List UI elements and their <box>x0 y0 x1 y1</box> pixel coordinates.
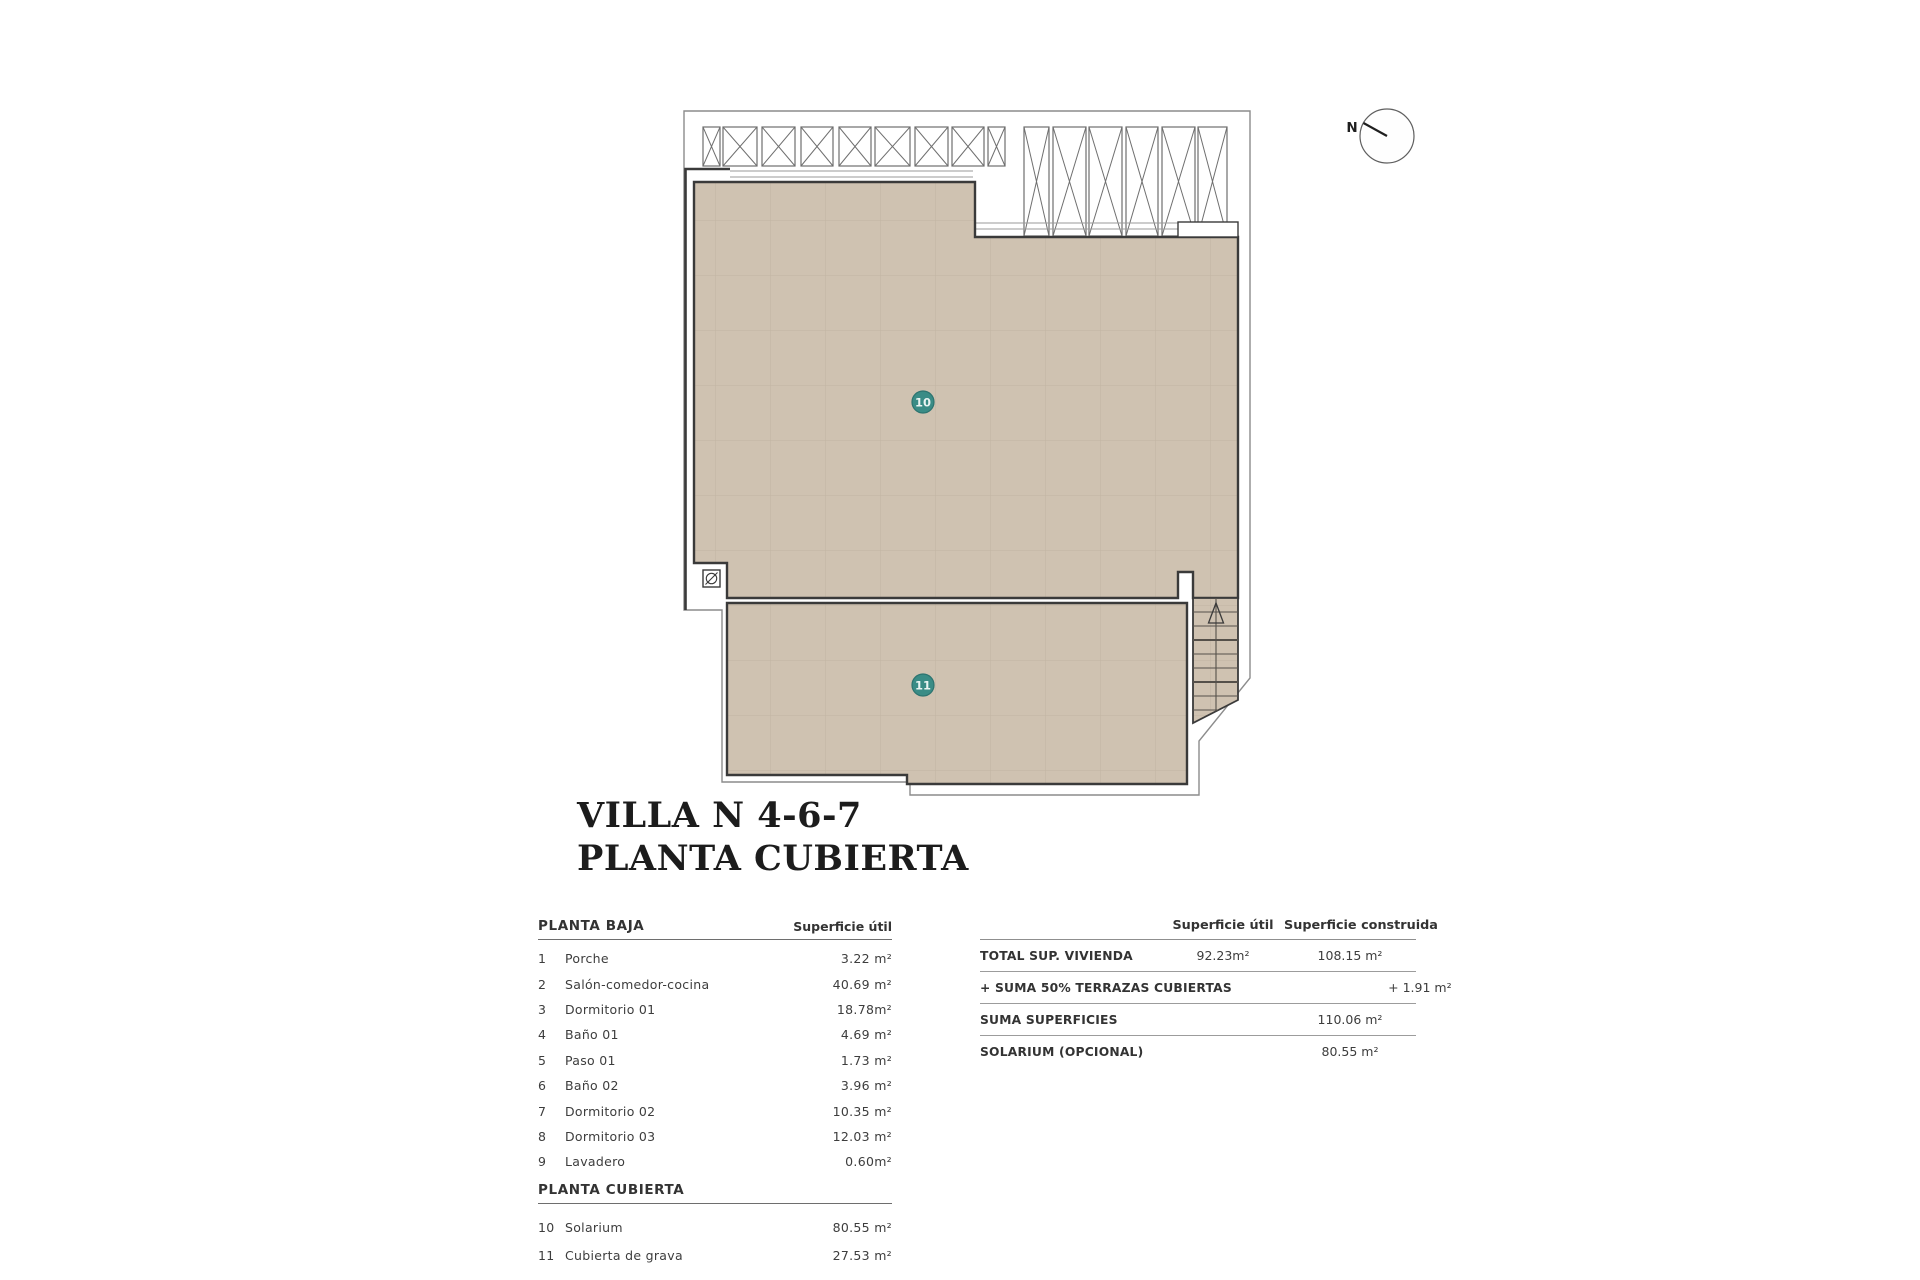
summary-construida: 110.06 m² <box>1284 1012 1416 1027</box>
column-header-superficie-util: Superficie útil <box>793 919 892 934</box>
table-row: 9 Lavadero 0.60m² <box>538 1149 892 1174</box>
planta-baja-rows: 1 Porche 3.22 m² 2 Salón-comedor-cocina … <box>538 940 892 1175</box>
room-area: 3.96 m² <box>841 1078 892 1093</box>
floor-plan-page: 10 11 N VILLA N 4-6-7 PLANTA CUBIERTA PL… <box>0 0 1920 1280</box>
table-row: SOLARIUM (OPCIONAL) 80.55 m² <box>980 1036 1416 1067</box>
table-row: 7 Dormitorio 02 10.35 m² <box>538 1098 892 1123</box>
room-area: 4.69 m² <box>841 1027 892 1042</box>
summary-construida: + 1.91 m² <box>1354 980 1486 995</box>
room-name: Baño 01 <box>565 1027 841 1042</box>
room-name: Paso 01 <box>565 1053 841 1068</box>
table-row: 5 Paso 01 1.73 m² <box>538 1048 892 1073</box>
room-number: 2 <box>538 977 565 992</box>
room-name: Porche <box>565 951 841 966</box>
room-area: 40.69 m² <box>833 977 892 992</box>
solarium-roof <box>694 182 1238 598</box>
room-area: 80.55 m² <box>833 1220 892 1235</box>
rooms-table-header-2: PLANTA CUBIERTA <box>538 1182 892 1204</box>
room-name: Dormitorio 01 <box>565 1002 837 1017</box>
table-row: 3 Dormitorio 01 18.78m² <box>538 997 892 1022</box>
room-name: Lavadero <box>565 1154 845 1169</box>
table-row: 1 Porche 3.22 m² <box>538 946 892 971</box>
table-row: 8 Dormitorio 03 12.03 m² <box>538 1124 892 1149</box>
table-row: 11 Cubierta de grava 27.53 m² <box>538 1242 892 1270</box>
room-area: 3.22 m² <box>841 951 892 966</box>
room-area: 0.60m² <box>845 1154 892 1169</box>
table-row: SUMA SUPERFICIES 110.06 m² <box>980 1004 1416 1036</box>
rooms-table: PLANTA BAJA Superficie útil 1 Porche 3.2… <box>538 918 892 1270</box>
summary-rows: TOTAL SUP. VIVIENDA 92.23m² 108.15 m² + … <box>980 940 1416 1067</box>
room-number: 5 <box>538 1053 565 1068</box>
table-row: TOTAL SUP. VIVIENDA 92.23m² 108.15 m² <box>980 940 1416 972</box>
summary-header: Superficie útil Superficie construida <box>980 918 1416 940</box>
table-row: 6 Baño 02 3.96 m² <box>538 1073 892 1098</box>
svg-text:11: 11 <box>915 679 931 693</box>
drain-icon <box>703 570 720 587</box>
room-name: Solarium <box>565 1220 833 1235</box>
room-number: 10 <box>538 1220 565 1235</box>
summary-construida: 108.15 m² <box>1284 948 1416 963</box>
room-area: 18.78m² <box>837 1002 892 1017</box>
table-row: 2 Salón-comedor-cocina 40.69 m² <box>538 971 892 996</box>
room-name: Cubierta de grava <box>565 1248 833 1263</box>
region-badge-10: 10 <box>912 391 934 413</box>
gravel-roof <box>727 603 1187 784</box>
drawing-title: VILLA N 4-6-7 PLANTA CUBIERTA <box>577 794 969 880</box>
room-number: 11 <box>538 1248 565 1263</box>
table-row: + SUMA 50% TERRAZAS CUBIERTAS + 1.91 m² <box>980 972 1416 1004</box>
room-area: 27.53 m² <box>833 1248 892 1263</box>
summary-label: SUMA SUPERFICIES <box>980 1013 1162 1027</box>
surface-summary-table: Superficie útil Superficie construida TO… <box>980 918 1416 1067</box>
wall-notch <box>1178 222 1238 237</box>
rooms-table-header: PLANTA BAJA Superficie útil <box>538 918 892 940</box>
room-number: 9 <box>538 1154 565 1169</box>
north-compass-icon: N <box>1346 109 1414 163</box>
room-number: 8 <box>538 1129 565 1144</box>
summary-util: 92.23m² <box>1162 948 1284 963</box>
room-name: Dormitorio 03 <box>565 1129 833 1144</box>
room-number: 7 <box>538 1104 565 1119</box>
title-line-2: PLANTA CUBIERTA <box>577 837 969 880</box>
summary-label: + SUMA 50% TERRAZAS CUBIERTAS <box>980 981 1232 995</box>
svg-text:10: 10 <box>915 396 931 410</box>
room-area: 12.03 m² <box>833 1129 892 1144</box>
svg-text:N: N <box>1346 120 1357 136</box>
planta-cubierta-rows: 10 Solarium 80.55 m² 11 Cubierta de grav… <box>538 1204 892 1270</box>
room-number: 6 <box>538 1078 565 1093</box>
table-row: 10 Solarium 80.55 m² <box>538 1214 892 1242</box>
room-name: Baño 02 <box>565 1078 841 1093</box>
region-badge-11: 11 <box>912 674 934 696</box>
summary-label: SOLARIUM (OPCIONAL) <box>980 1045 1162 1059</box>
table-row: 4 Baño 01 4.69 m² <box>538 1022 892 1047</box>
summary-label: TOTAL SUP. VIVIENDA <box>980 949 1162 963</box>
floor-plan-drawing: 10 11 N <box>650 80 1480 820</box>
room-number: 4 <box>538 1027 565 1042</box>
title-line-1: VILLA N 4-6-7 <box>577 794 969 837</box>
section-header-planta-cubierta: PLANTA CUBIERTA <box>538 1182 684 1198</box>
column-header-superficie-util: Superficie útil <box>1162 918 1284 933</box>
room-name: Dormitorio 02 <box>565 1104 833 1119</box>
room-number: 3 <box>538 1002 565 1017</box>
section-header-planta-baja: PLANTA BAJA <box>538 918 644 934</box>
room-area: 1.73 m² <box>841 1053 892 1068</box>
summary-construida: 80.55 m² <box>1284 1044 1416 1059</box>
room-name: Salón-comedor-cocina <box>565 977 833 992</box>
room-area: 10.35 m² <box>833 1104 892 1119</box>
room-number: 1 <box>538 951 565 966</box>
column-header-superficie-construida: Superficie construida <box>1284 918 1416 933</box>
